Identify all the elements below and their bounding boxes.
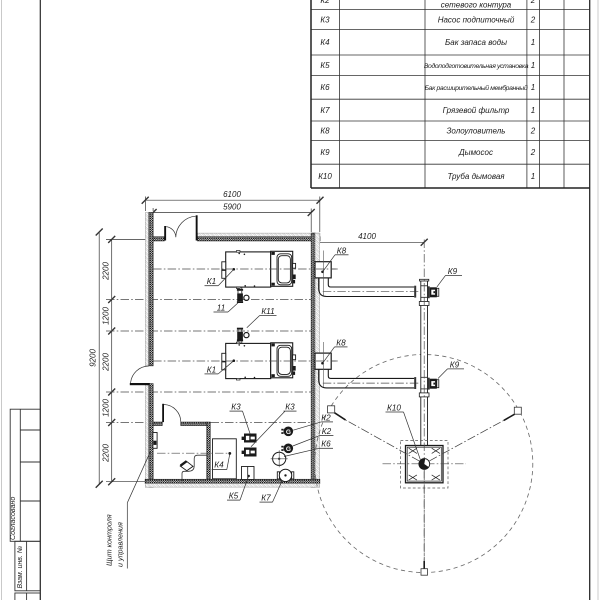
- svg-text:сетевого контура: сетевого контура: [441, 0, 512, 9]
- svg-text:1: 1: [531, 38, 535, 47]
- svg-text:К10: К10: [387, 404, 401, 413]
- svg-text:и управления: и управления: [116, 522, 125, 567]
- svg-text:4100: 4100: [358, 232, 376, 241]
- svg-text:К2: К2: [322, 427, 332, 436]
- svg-text:К3: К3: [285, 403, 295, 412]
- svg-text:2200: 2200: [101, 353, 110, 372]
- svg-text:1: 1: [531, 83, 535, 92]
- svg-text:К8: К8: [336, 339, 346, 348]
- svg-text:К8: К8: [337, 246, 347, 255]
- svg-text:К4: К4: [214, 460, 224, 469]
- svg-text:Согласовано: Согласовано: [9, 497, 17, 540]
- svg-text:К6: К6: [320, 83, 330, 92]
- svg-text:Золоуловитель: Золоуловитель: [447, 127, 506, 136]
- svg-text:Водоподготовительная установка: Водоподготовительная установка: [424, 62, 529, 70]
- svg-text:Дымосос: Дымосос: [458, 148, 493, 157]
- svg-text:1200: 1200: [101, 399, 110, 417]
- svg-text:2: 2: [530, 0, 536, 5]
- svg-text:К7: К7: [320, 106, 330, 115]
- svg-text:К8: К8: [320, 127, 330, 136]
- svg-text:2: 2: [530, 15, 536, 24]
- svg-text:G: G: [286, 446, 291, 453]
- svg-text:5900: 5900: [223, 203, 241, 212]
- svg-text:2: 2: [530, 127, 536, 136]
- svg-text:К1: К1: [207, 365, 216, 374]
- svg-text:К10: К10: [318, 172, 332, 181]
- svg-text:Бак запаса воды: Бак запаса воды: [445, 38, 507, 47]
- svg-text:2200: 2200: [101, 262, 110, 281]
- svg-text:9200: 9200: [89, 349, 98, 367]
- svg-text:К11: К11: [261, 307, 274, 316]
- svg-text:К9: К9: [450, 361, 460, 370]
- svg-text:2: 2: [530, 148, 536, 157]
- svg-text:К3: К3: [231, 403, 241, 412]
- svg-text:К2: К2: [321, 413, 331, 422]
- svg-text:1200: 1200: [101, 307, 110, 325]
- svg-text:Грязевой фильтр: Грязевой фильтр: [443, 106, 510, 115]
- svg-text:Щит контроля: Щит контроля: [105, 514, 114, 566]
- svg-text:К2: К2: [320, 0, 330, 5]
- svg-text:Насос подпиточный: Насос подпиточный: [438, 15, 515, 24]
- svg-text:Взам. инв. №: Взам. инв. №: [17, 545, 24, 588]
- svg-text:К5: К5: [229, 492, 239, 501]
- svg-text:1: 1: [531, 172, 535, 181]
- svg-text:G: G: [286, 429, 291, 436]
- svg-text:К9: К9: [448, 267, 458, 276]
- svg-text:К1: К1: [207, 277, 216, 286]
- svg-text:1: 1: [531, 106, 535, 115]
- svg-text:Бак расширительный мембранный: Бак расширительный мембранный: [425, 84, 528, 92]
- svg-text:К7: К7: [261, 494, 271, 503]
- svg-text:К4: К4: [320, 38, 330, 47]
- svg-text:11: 11: [217, 303, 226, 312]
- svg-text:2200: 2200: [101, 444, 110, 463]
- svg-text:К3: К3: [320, 15, 330, 24]
- svg-text:1: 1: [531, 61, 535, 70]
- svg-text:К9: К9: [320, 148, 330, 157]
- svg-text:К5: К5: [320, 61, 330, 70]
- svg-text:Труба дымовая: Труба дымовая: [447, 172, 505, 181]
- svg-text:6100: 6100: [223, 190, 241, 199]
- svg-text:К6: К6: [321, 439, 331, 448]
